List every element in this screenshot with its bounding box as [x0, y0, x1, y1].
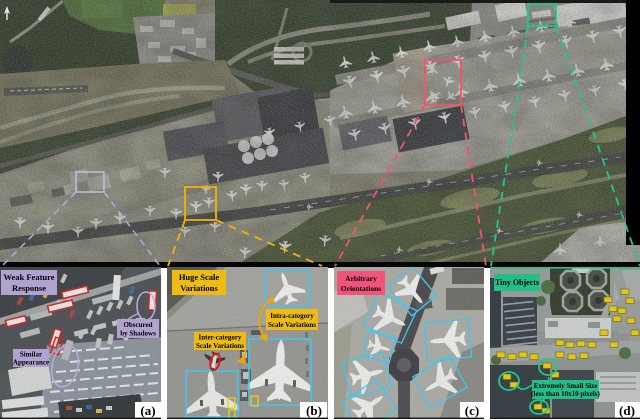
svg-text:Similar: Similar	[20, 351, 42, 359]
svg-text:Response: Response	[12, 283, 46, 293]
svg-text:Huge Scale: Huge Scale	[179, 272, 220, 282]
svg-text:Orientations: Orientations	[341, 284, 381, 293]
svg-text:Inter-category: Inter-category	[199, 334, 242, 342]
svg-text:Intra-category: Intra-category	[270, 312, 314, 320]
svg-text:Obscured: Obscured	[123, 321, 152, 329]
svg-text:Weak Feature: Weak Feature	[3, 272, 54, 282]
svg-text:Variations: Variations	[180, 283, 218, 293]
svg-text:Scale Variations: Scale Variations	[268, 321, 316, 329]
svg-text:(less than 10x10 pixels): (less than 10x10 pixels)	[531, 390, 600, 398]
svg-text:Arbitrary: Arbitrary	[345, 274, 377, 283]
svg-text:Appearance: Appearance	[13, 359, 49, 367]
svg-text:Scale Variations: Scale Variations	[196, 342, 244, 350]
svg-text:by Shadows: by Shadows	[120, 330, 156, 338]
svg-text:Tiny Objects: Tiny Objects	[495, 278, 539, 287]
svg-text:(b): (b)	[306, 403, 322, 418]
svg-text:(a): (a)	[140, 403, 155, 418]
svg-text:(c): (c)	[465, 403, 479, 418]
svg-text:(d): (d)	[619, 403, 635, 418]
svg-text:Extremely Small Size: Extremely Small Size	[534, 382, 598, 390]
